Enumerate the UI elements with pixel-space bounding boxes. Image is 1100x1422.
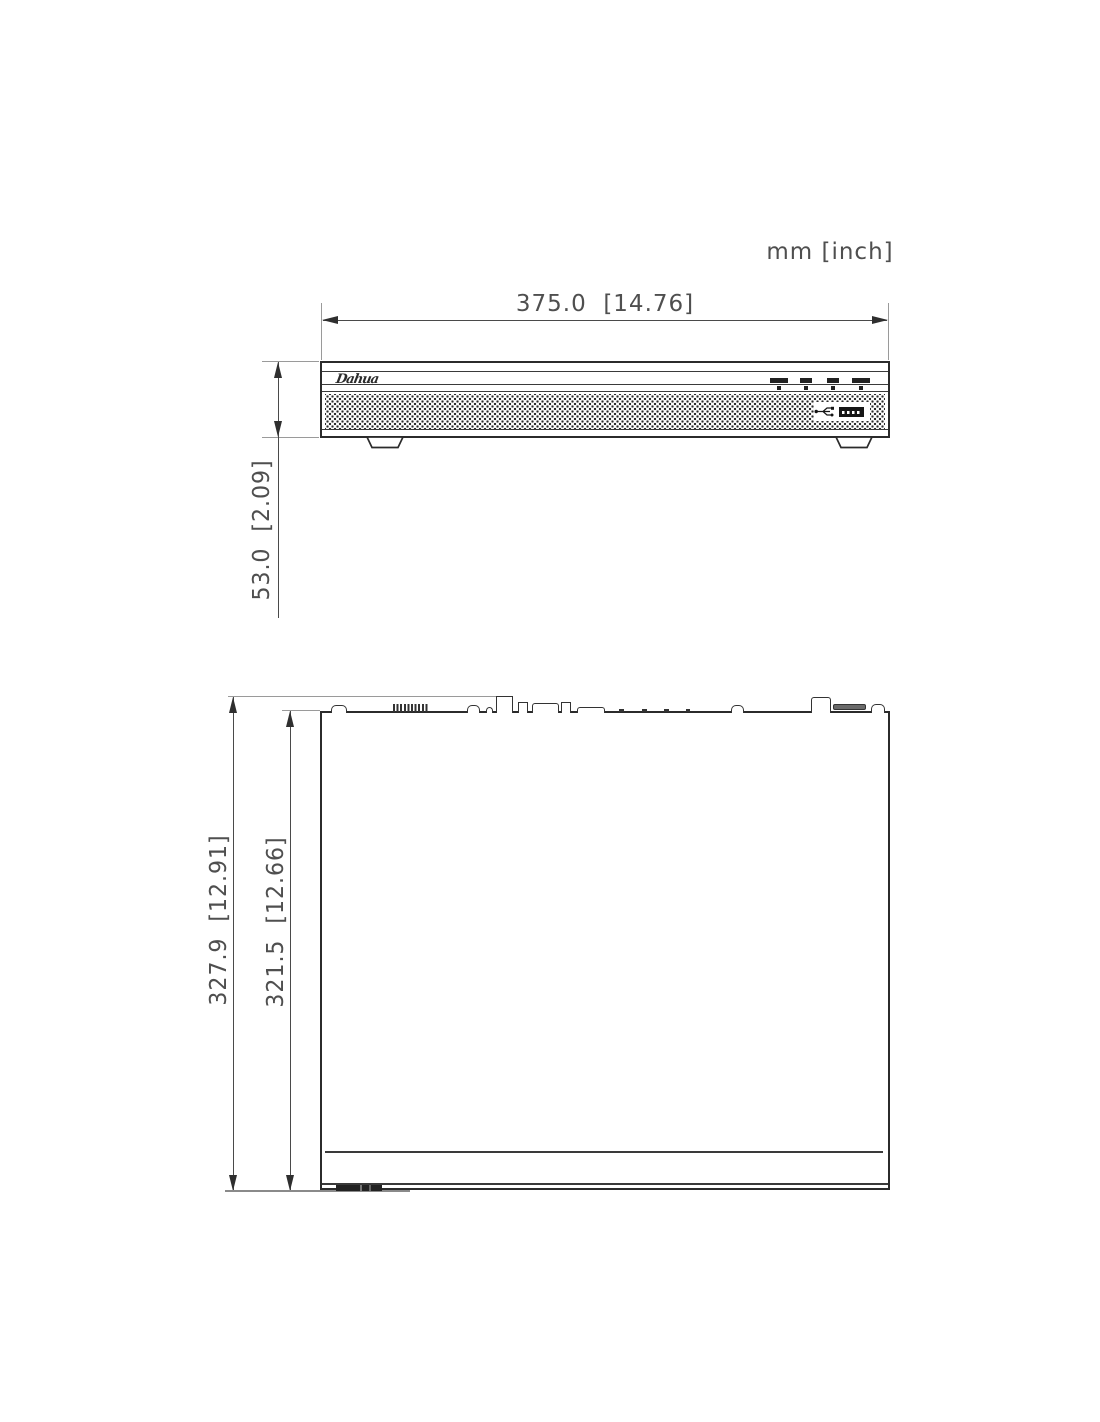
- power-socket-icon: [496, 696, 513, 713]
- usb-port-icon: [839, 407, 864, 417]
- top-view-body: [320, 711, 890, 1190]
- pin-bump-icon: [486, 707, 493, 713]
- extension-line-right: [888, 303, 889, 360]
- screw-bump-icon: [871, 704, 885, 713]
- inner-depth-label: 321.5 [12.66]: [262, 831, 290, 1013]
- arrowhead-down-icon: [286, 1175, 294, 1191]
- vga-connector-icon: [532, 703, 559, 713]
- front-panel-strip: [336, 1185, 382, 1191]
- extension-line-bottom: [225, 1190, 410, 1192]
- width-dimension-label: 375.0 [14.76]: [322, 290, 888, 318]
- usb-area: [814, 402, 870, 421]
- height-dimension-line: [278, 362, 279, 618]
- low-bump-icon: [577, 707, 605, 713]
- terminal-block-icon: [393, 704, 428, 712]
- tick-mark-icon: [619, 709, 624, 712]
- screw-bump-icon: [467, 705, 480, 713]
- extension-line-top: [262, 361, 319, 362]
- tick-mark-icon: [642, 709, 647, 712]
- vent-bar-icon: [833, 704, 866, 710]
- screw-bump-icon: [331, 705, 347, 713]
- extension-line-bottom: [262, 437, 319, 438]
- outer-depth-dimension-line: [233, 697, 234, 1191]
- status-indicator-icon: [770, 378, 788, 392]
- width-dimension-line: [323, 320, 887, 321]
- status-indicator-icon: [827, 378, 839, 392]
- pin-connector-icon: [518, 702, 528, 713]
- outer-depth-label: 327.9 [12.91]: [205, 829, 233, 1011]
- panel-groove-line: [322, 391, 888, 392]
- extension-line-outer-top: [228, 696, 505, 697]
- power-inlet-icon: [811, 697, 831, 713]
- arrowhead-up-icon: [274, 362, 282, 378]
- front-bezel-line: [322, 1183, 888, 1185]
- dimension-drawing: mm [inch] 375.0 [14.76] 53.0 [2.09] Dahu…: [0, 0, 1100, 1422]
- foot-right-icon: [834, 436, 874, 449]
- arrowhead-down-icon: [274, 421, 282, 437]
- panel-groove-line: [322, 371, 888, 372]
- height-dimension-label: 53.0 [2.09]: [248, 448, 276, 611]
- tick-mark-icon: [686, 709, 690, 712]
- screw-bump-icon: [731, 705, 744, 713]
- pin-connector-icon: [561, 702, 571, 713]
- usb-icon: [814, 406, 836, 417]
- panel-groove-line: [322, 429, 888, 430]
- arrowhead-up-icon: [229, 697, 237, 713]
- arrowhead-up-icon: [286, 711, 294, 727]
- inner-depth-dimension-line: [290, 711, 291, 1191]
- front-view-panel: Dahua: [320, 361, 890, 438]
- front-bezel-line: [325, 1151, 883, 1153]
- status-indicator-icon: [852, 378, 870, 392]
- tick-mark-icon: [664, 709, 669, 712]
- foot-left-icon: [365, 436, 405, 449]
- arrowhead-down-icon: [229, 1175, 237, 1191]
- units-note: mm [inch]: [760, 238, 900, 266]
- mesh-grille-icon: [325, 394, 885, 429]
- status-indicator-icon: [800, 378, 812, 392]
